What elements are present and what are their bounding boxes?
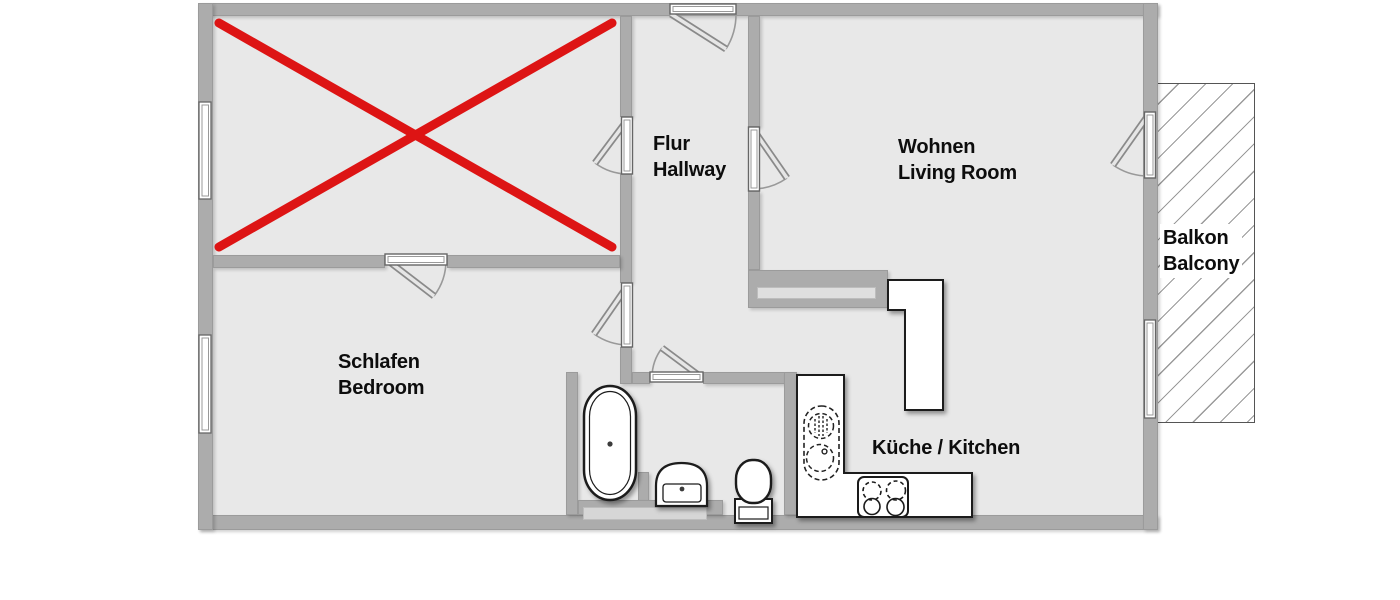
window-icon (199, 335, 211, 433)
door-icon-crossed-room (595, 117, 633, 174)
bedroom-label-de: Schlafen (338, 349, 424, 375)
door-icon-between-rooms (385, 254, 447, 296)
red-cross-marker (219, 23, 612, 247)
balcony-door-icon (1113, 112, 1156, 178)
balcony-label-de: Balkon (1163, 225, 1239, 251)
hallway-label: Flur Hallway (653, 131, 726, 183)
bathtub-icon (584, 386, 636, 500)
entrance-door-icon (670, 4, 736, 49)
kitchen-label-text: Küche / Kitchen (872, 435, 1020, 461)
window-icon (199, 102, 211, 199)
door-icon-bathroom (650, 348, 703, 382)
symbols-layer (0, 0, 1400, 600)
hallway-label-en: Hallway (653, 157, 726, 183)
door-icon-bedroom (594, 283, 633, 347)
hallway-label-de: Flur (653, 131, 726, 157)
door-icon-living-room (749, 127, 788, 191)
balcony-label: Balkon Balcony (1160, 224, 1242, 278)
bedroom-label: Schlafen Bedroom (338, 349, 424, 401)
kitchen-label: Küche / Kitchen (872, 435, 1020, 461)
living-room-label-de: Wohnen (898, 134, 1017, 160)
bedroom-label-en: Bedroom (338, 375, 424, 401)
toilet-icon (735, 460, 772, 523)
kitchen-island (888, 280, 943, 410)
living-room-label: Wohnen Living Room (898, 134, 1017, 186)
floor-plan: Flur Hallway Wohnen Living Room Schlafen… (0, 0, 1400, 600)
living-room-label-en: Living Room (898, 160, 1017, 186)
balcony-label-en: Balcony (1163, 251, 1239, 277)
window-icon (1145, 320, 1156, 418)
washbasin-icon (656, 463, 707, 506)
